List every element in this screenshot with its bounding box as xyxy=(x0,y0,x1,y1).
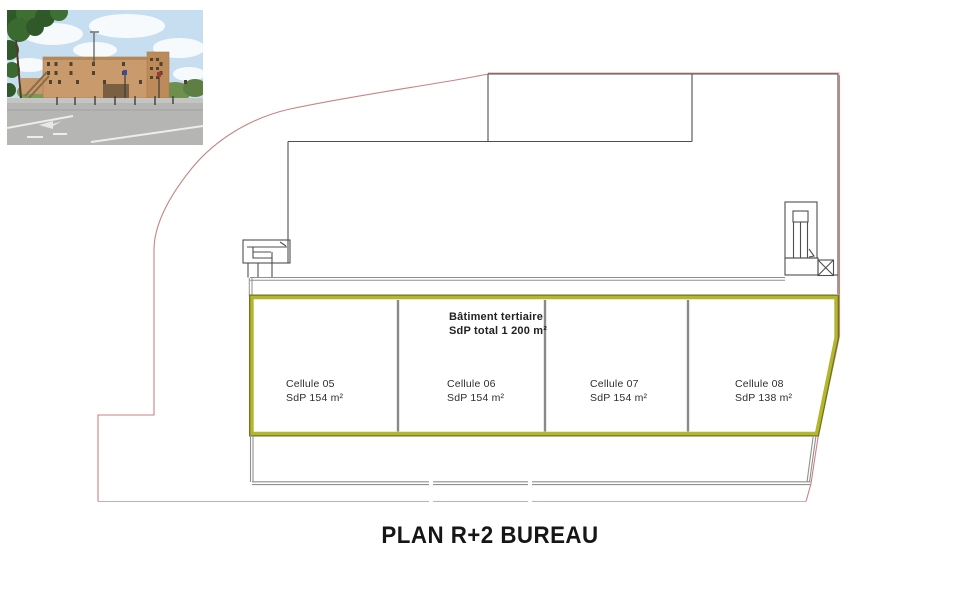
building-outline xyxy=(243,74,838,294)
cell-05-label: Cellule 05 SdP 154 m² xyxy=(286,378,343,405)
cell-06-label: Cellule 06 SdP 154 m² xyxy=(447,378,504,405)
upper-room-outline xyxy=(288,74,692,142)
cell-name: Cellule 08 xyxy=(735,378,792,392)
elevator-symbol xyxy=(818,260,834,276)
cell-08-label: Cellule 08 SdP 138 m² xyxy=(735,378,792,405)
floor-plan-page: Bâtiment tertiaire SdP total 1 200 m² Ce… xyxy=(0,0,960,593)
cell-07-label: Cellule 07 SdP 154 m² xyxy=(590,378,647,405)
walkway-lines xyxy=(249,278,785,297)
cell-area: SdP 154 m² xyxy=(286,392,343,406)
site-boundary-line xyxy=(98,73,840,501)
cell-name: Cellule 06 xyxy=(447,378,504,392)
cell-area: SdP 154 m² xyxy=(590,392,647,406)
plan-drawing xyxy=(0,0,960,593)
building-note: Bâtiment tertiaire SdP total 1 200 m² xyxy=(449,311,547,338)
stairwell-right xyxy=(785,202,818,275)
plan-title: PLAN R+2 BUREAU xyxy=(351,522,630,550)
cell-name: Cellule 05 xyxy=(286,378,343,392)
cell-area: SdP 154 m² xyxy=(447,392,504,406)
terrace-outline xyxy=(251,435,817,485)
cell-area: SdP 138 m² xyxy=(735,392,792,406)
building-note-line1: Bâtiment tertiaire xyxy=(449,311,547,325)
cell-name: Cellule 07 xyxy=(590,378,647,392)
stairwell-left xyxy=(243,240,290,278)
building-note-line2: SdP total 1 200 m² xyxy=(449,325,547,339)
